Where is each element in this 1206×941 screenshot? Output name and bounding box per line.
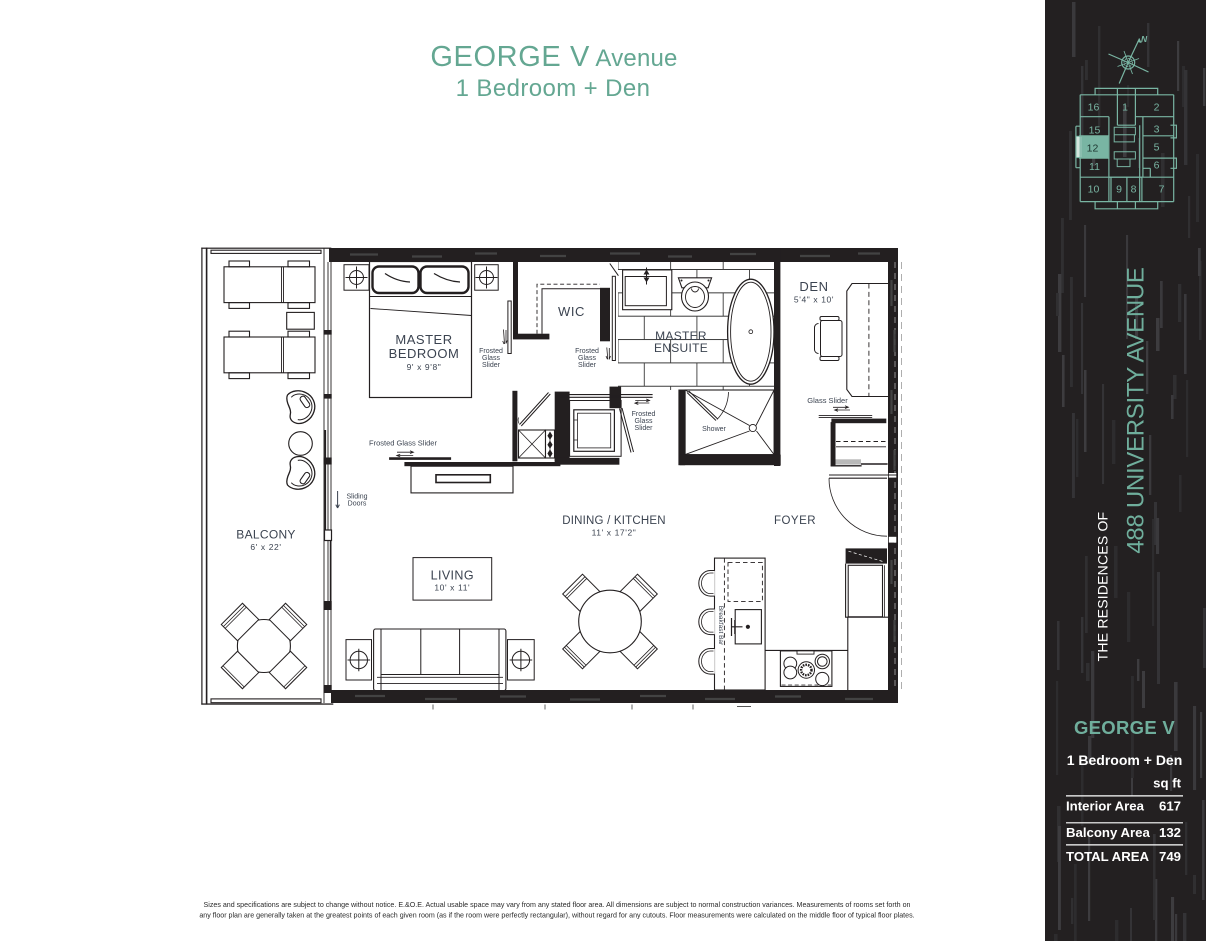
svg-text:DINING / KITCHEN: DINING / KITCHEN	[562, 515, 666, 527]
svg-text:Slider: Slider	[578, 362, 597, 369]
svg-text:Interior Area: Interior Area	[1066, 799, 1145, 814]
svg-text:Glass: Glass	[635, 418, 653, 425]
svg-text:10: 10	[1088, 184, 1100, 196]
svg-text:BALCONY: BALCONY	[236, 528, 295, 542]
svg-text:5'4" x 10': 5'4" x 10'	[794, 295, 834, 305]
svg-text:Shower: Shower	[702, 426, 726, 433]
svg-text:9' x 9'8": 9' x 9'8"	[407, 362, 442, 372]
svg-text:8: 8	[1131, 184, 1137, 196]
svg-text:3: 3	[1154, 124, 1160, 136]
svg-text:Balcony Area: Balcony Area	[1066, 825, 1150, 840]
svg-text:sq ft: sq ft	[1153, 776, 1181, 791]
svg-text:6' x 22': 6' x 22'	[250, 542, 281, 552]
svg-text:DEN: DEN	[799, 279, 828, 294]
svg-text:1: 1	[1122, 102, 1128, 114]
svg-text:Sliding: Sliding	[346, 494, 367, 501]
svg-text:Doors: Doors	[348, 501, 367, 508]
svg-text:7: 7	[1159, 184, 1165, 196]
svg-text:Frosted: Frosted	[479, 348, 503, 355]
svg-text:6: 6	[1154, 160, 1160, 172]
svg-text:1 Bedroom + Den: 1 Bedroom + Den	[1067, 752, 1183, 768]
svg-text:15: 15	[1089, 125, 1101, 137]
svg-text:Glass: Glass	[482, 355, 500, 362]
svg-text:TOTAL AREA: TOTAL AREA	[1066, 849, 1150, 864]
svg-text:12: 12	[1087, 143, 1099, 155]
svg-text:10' x 11': 10' x 11'	[434, 583, 470, 593]
svg-text:ENSUITE: ENSUITE	[654, 341, 708, 355]
svg-text:Breakfast Bar: Breakfast Bar	[717, 606, 724, 646]
svg-text:749: 749	[1159, 849, 1181, 864]
svg-text:Frosted Glass Slider: Frosted Glass Slider	[369, 439, 437, 448]
svg-text:Sizes and specifications are s: Sizes and specifications are subject to …	[204, 901, 911, 909]
svg-text:488 UNIVERSITY AVENUE: 488 UNIVERSITY AVENUE	[1123, 267, 1150, 553]
svg-text:Frosted: Frosted	[632, 411, 656, 418]
svg-text:9: 9	[1116, 184, 1122, 196]
svg-text:THE RESIDENCES OF: THE RESIDENCES OF	[1095, 512, 1111, 662]
svg-text:BEDROOM: BEDROOM	[389, 346, 460, 361]
svg-text:Frosted: Frosted	[575, 348, 599, 355]
svg-text:Slider: Slider	[482, 362, 501, 369]
svg-text:WIC: WIC	[558, 304, 585, 319]
svg-text:11: 11	[1089, 161, 1100, 173]
svg-text:GEORGE V Avenue: GEORGE V Avenue	[430, 41, 677, 73]
svg-text:FOYER: FOYER	[774, 515, 816, 527]
svg-text:11' x 17'2": 11' x 17'2"	[592, 528, 637, 538]
svg-text:132: 132	[1159, 825, 1181, 840]
svg-text:16: 16	[1088, 102, 1100, 114]
svg-text:GEORGE V: GEORGE V	[1074, 717, 1175, 738]
svg-text:any floor plan are generally t: any floor plan are generally taken at th…	[199, 912, 914, 920]
svg-text:MASTER: MASTER	[395, 332, 452, 347]
svg-text:Glass: Glass	[578, 355, 596, 362]
svg-text:5: 5	[1154, 142, 1160, 154]
svg-text:2: 2	[1154, 102, 1160, 114]
svg-text:Slider: Slider	[635, 425, 654, 432]
svg-text:N: N	[1141, 34, 1148, 44]
svg-text:Glass Slider: Glass Slider	[807, 396, 848, 405]
svg-text:1 Bedroom + Den: 1 Bedroom + Den	[456, 75, 651, 102]
svg-text:617: 617	[1159, 799, 1181, 814]
svg-text:LIVING: LIVING	[431, 569, 474, 583]
